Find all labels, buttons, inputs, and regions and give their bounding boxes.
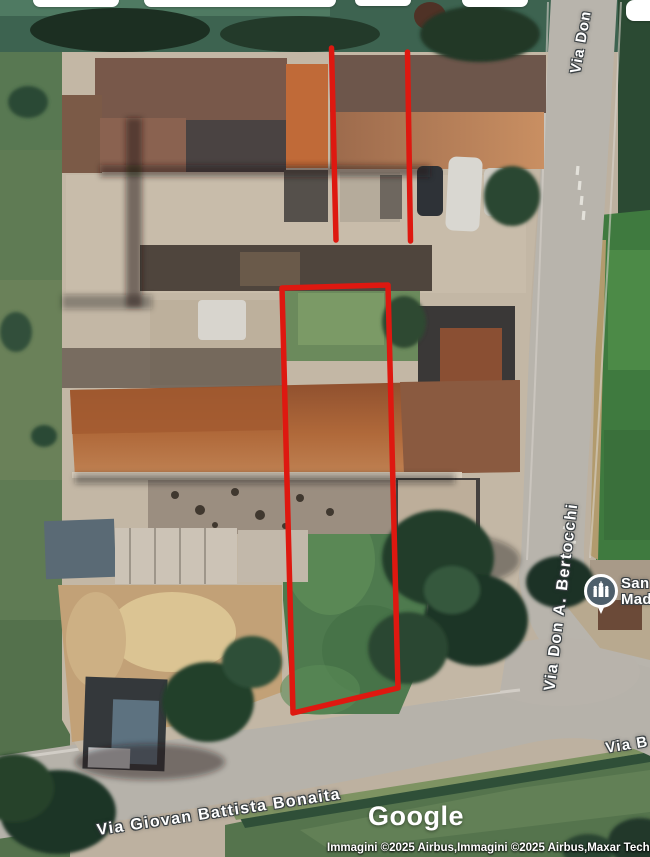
top-ui-chip-2[interactable] <box>144 0 336 7</box>
top-ui-chip-3[interactable] <box>355 0 411 6</box>
top-ui-chip-1[interactable] <box>33 0 119 7</box>
imagery-attribution: Immagini ©2025 Airbus,Immagini ©2025 Air… <box>327 842 650 854</box>
poi-label[interactable]: San Mad <box>621 576 650 608</box>
poi-label-line1: San <box>621 576 650 592</box>
satellite-map[interactable] <box>0 0 650 857</box>
google-maps-satellite-view: { "colors": { "overlay_red": "#de1810", … <box>0 0 650 857</box>
poi-label-line2: Mad <box>621 592 650 608</box>
top-ui-chip-5[interactable] <box>626 0 650 21</box>
poi-marker-sanctuary[interactable] <box>582 573 620 617</box>
parcel-red-line-right[interactable] <box>408 52 411 241</box>
google-logo[interactable]: Google <box>368 801 464 832</box>
top-ui-chip-4[interactable] <box>462 0 528 7</box>
